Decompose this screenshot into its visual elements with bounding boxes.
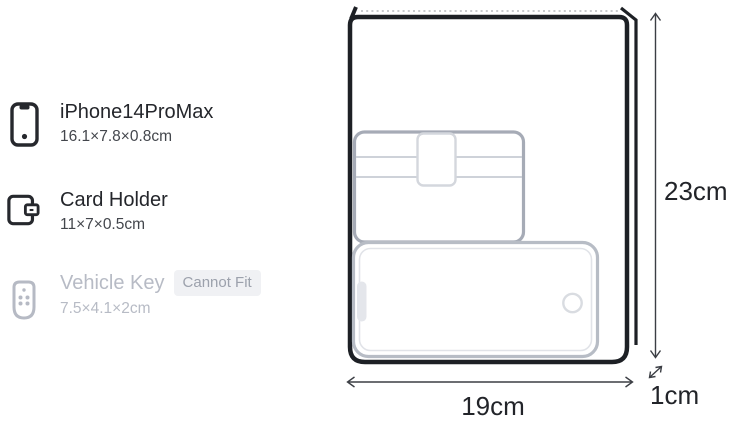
bag-size-diagram: [0, 0, 750, 423]
height-arrow: [651, 14, 661, 358]
bag-size-fit-guide: iPhone14ProMax 16.1×7.8×0.8cm Card Holde…: [0, 0, 750, 423]
depth-label: 1cm: [650, 381, 699, 409]
depth-arrow: [650, 367, 662, 378]
card-holder-outline: [355, 132, 524, 242]
width-label: 19cm: [433, 392, 553, 420]
height-label: 23cm: [664, 177, 728, 205]
width-arrow: [348, 377, 633, 387]
phone-outline: [354, 243, 598, 357]
